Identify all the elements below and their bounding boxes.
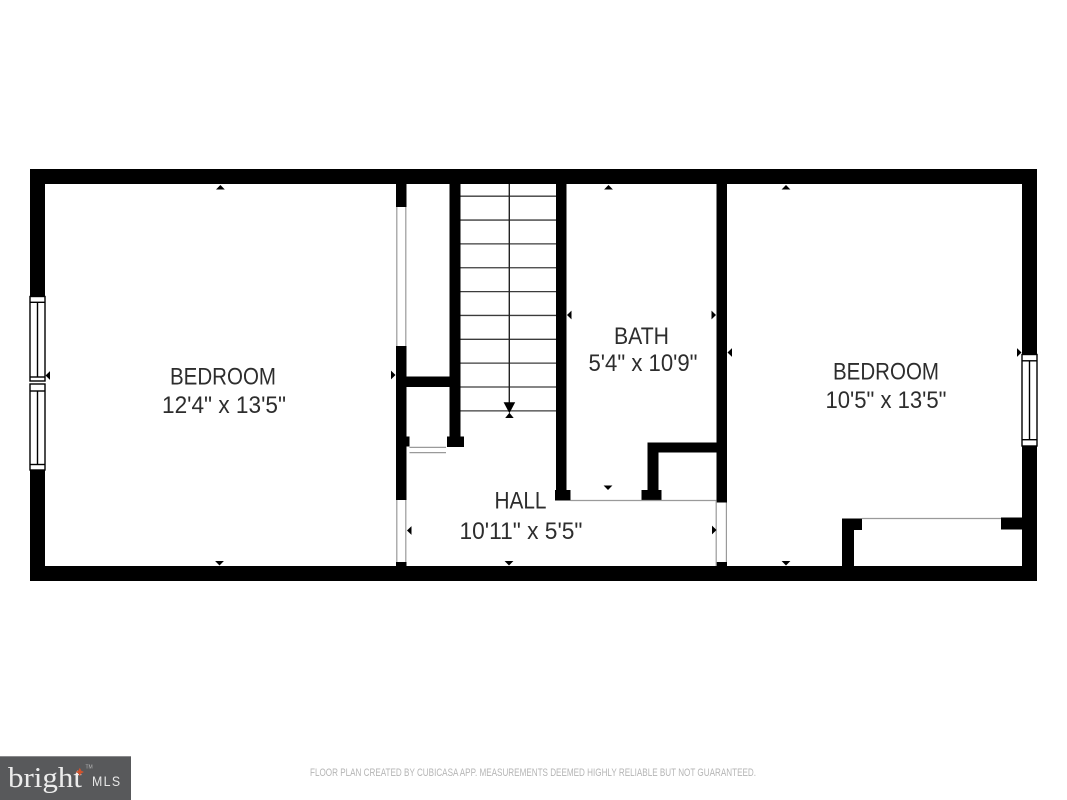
svg-text:BEDROOM: BEDROOM [170, 363, 276, 390]
svg-text:bright: bright [8, 763, 82, 794]
svg-text:10'11" x 5'5": 10'11" x 5'5" [460, 518, 583, 545]
svg-text:FLOOR PLAN CREATED BY CUBICASA: FLOOR PLAN CREATED BY CUBICASA APP. MEAS… [310, 767, 756, 779]
svg-text:5'4" x 10'9": 5'4" x 10'9" [589, 350, 698, 377]
svg-text:BATH: BATH [614, 323, 669, 350]
svg-text:10'5" x 13'5": 10'5" x 13'5" [826, 387, 947, 414]
svg-text:HALL: HALL [495, 488, 547, 515]
svg-text:12'4" x 13'5": 12'4" x 13'5" [162, 392, 286, 419]
svg-text:TM: TM [86, 765, 93, 771]
svg-text:MLS: MLS [92, 774, 122, 789]
svg-text:BEDROOM: BEDROOM [833, 358, 939, 385]
